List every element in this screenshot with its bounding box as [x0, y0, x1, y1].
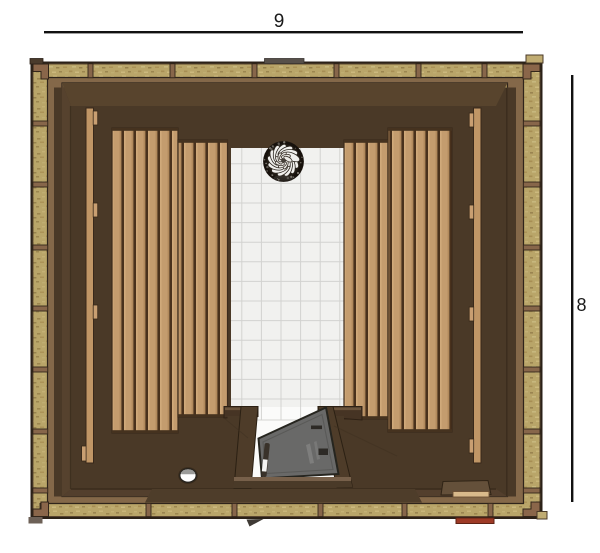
svg-text:8: 8 [577, 295, 587, 315]
svg-text:9: 9 [274, 11, 285, 32]
